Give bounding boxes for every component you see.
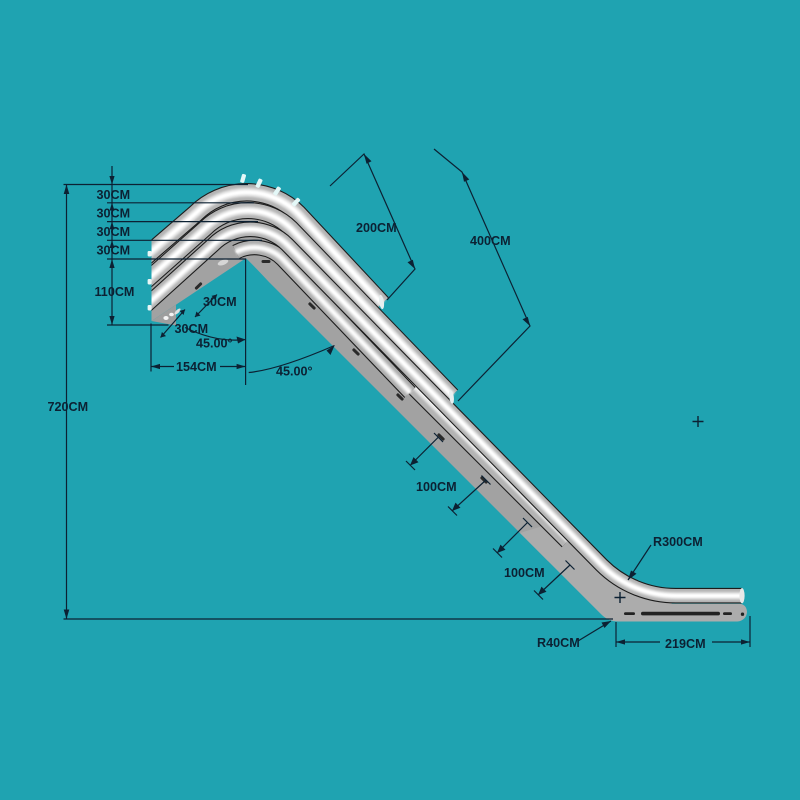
svg-text:R40CM: R40CM <box>537 636 580 650</box>
svg-text:720CM: 720CM <box>48 400 89 414</box>
svg-text:45.00°: 45.00° <box>276 365 313 379</box>
svg-text:30CM: 30CM <box>97 188 131 202</box>
svg-text:30CM: 30CM <box>97 207 131 221</box>
svg-text:154CM: 154CM <box>176 360 217 374</box>
svg-text:30CM: 30CM <box>203 295 237 309</box>
svg-text:100CM: 100CM <box>416 480 457 494</box>
svg-text:30CM: 30CM <box>97 244 131 258</box>
svg-text:400CM: 400CM <box>470 234 511 248</box>
svg-text:45.00°: 45.00° <box>196 337 233 351</box>
svg-text:R300CM: R300CM <box>653 535 703 549</box>
svg-text:219CM: 219CM <box>665 637 706 651</box>
svg-text:30CM: 30CM <box>97 225 131 239</box>
svg-text:200CM: 200CM <box>356 221 397 235</box>
svg-text:100CM: 100CM <box>504 566 545 580</box>
svg-text:30CM: 30CM <box>175 322 209 336</box>
svg-text:110CM: 110CM <box>95 285 135 299</box>
